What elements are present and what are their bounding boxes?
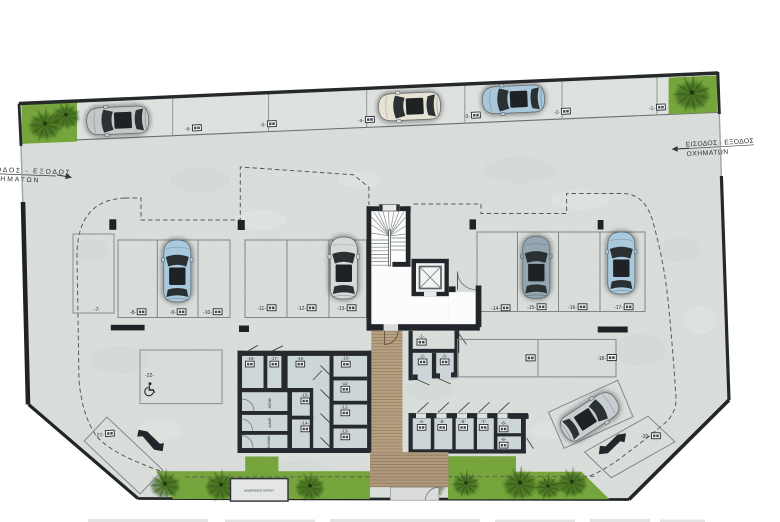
- svg-text:ΔΙΑΔΡ.: ΔΙΑΔΡ.: [268, 417, 272, 428]
- svg-text:-20-: -20-: [641, 434, 650, 440]
- svg-text:-10-: -10-: [342, 356, 350, 361]
- svg-text:-6-: -6-: [185, 126, 192, 132]
- svg-text:-17-: -17-: [614, 305, 623, 311]
- svg-text:-5-: -5-: [260, 122, 267, 128]
- svg-text:-16-: -16-: [297, 356, 305, 361]
- svg-text:ΑΠΟΘ.: ΑΠΟΘ.: [268, 397, 272, 408]
- svg-text:-11-: -11-: [257, 306, 266, 312]
- svg-text:-3-: -3-: [464, 114, 471, 120]
- svg-text:-16-: -16-: [568, 305, 577, 311]
- svg-text:-12-: -12-: [341, 405, 349, 410]
- svg-text:-1-: -1-: [419, 334, 425, 339]
- svg-text:-2-: -2-: [420, 354, 426, 359]
- svg-text:-14-: -14-: [491, 306, 500, 312]
- svg-text:-8-: -8-: [130, 310, 136, 316]
- svg-text:-7-: -7-: [481, 419, 487, 424]
- svg-text:-18-: -18-: [247, 356, 255, 361]
- svg-text:-9-: -9-: [501, 437, 507, 442]
- svg-text:-4-: -4-: [419, 419, 425, 424]
- svg-text:-6-: -6-: [460, 419, 466, 424]
- svg-text:-13-: -13-: [341, 428, 349, 433]
- svg-text:-1-: -1-: [649, 106, 656, 112]
- svg-text:-11-: -11-: [341, 381, 349, 386]
- svg-text:-4-: -4-: [358, 118, 365, 124]
- svg-text:ΚΛΙΜΑΚ.: ΚΛΙΜΑΚ.: [267, 435, 271, 449]
- svg-text:-2-: -2-: [554, 110, 561, 116]
- svg-text:-18-: -18-: [597, 356, 606, 362]
- svg-text:-14-: -14-: [301, 421, 309, 426]
- svg-text:-5-: -5-: [439, 419, 445, 424]
- svg-text:-17-: -17-: [271, 356, 279, 361]
- svg-text:-12-: -12-: [297, 306, 306, 312]
- svg-text:-22-: -22-: [145, 373, 154, 379]
- svg-text:-15-: -15-: [527, 305, 536, 311]
- svg-text:-10-: -10-: [203, 310, 212, 316]
- svg-text:-8-: -8-: [501, 421, 507, 426]
- svg-text:-15-: -15-: [301, 393, 309, 398]
- svg-text:-7-: -7-: [94, 307, 100, 313]
- svg-text:-21-: -21-: [95, 432, 105, 439]
- svg-text:-9-: -9-: [170, 310, 176, 316]
- svg-text:-13-: -13-: [337, 306, 346, 312]
- svg-text:-3-: -3-: [442, 354, 448, 359]
- svg-text:ΔΙΑΔΡΟΜΟΣ ΚΗΠΟΥ: ΔΙΑΔΡΟΜΟΣ ΚΗΠΟΥ: [244, 489, 274, 493]
